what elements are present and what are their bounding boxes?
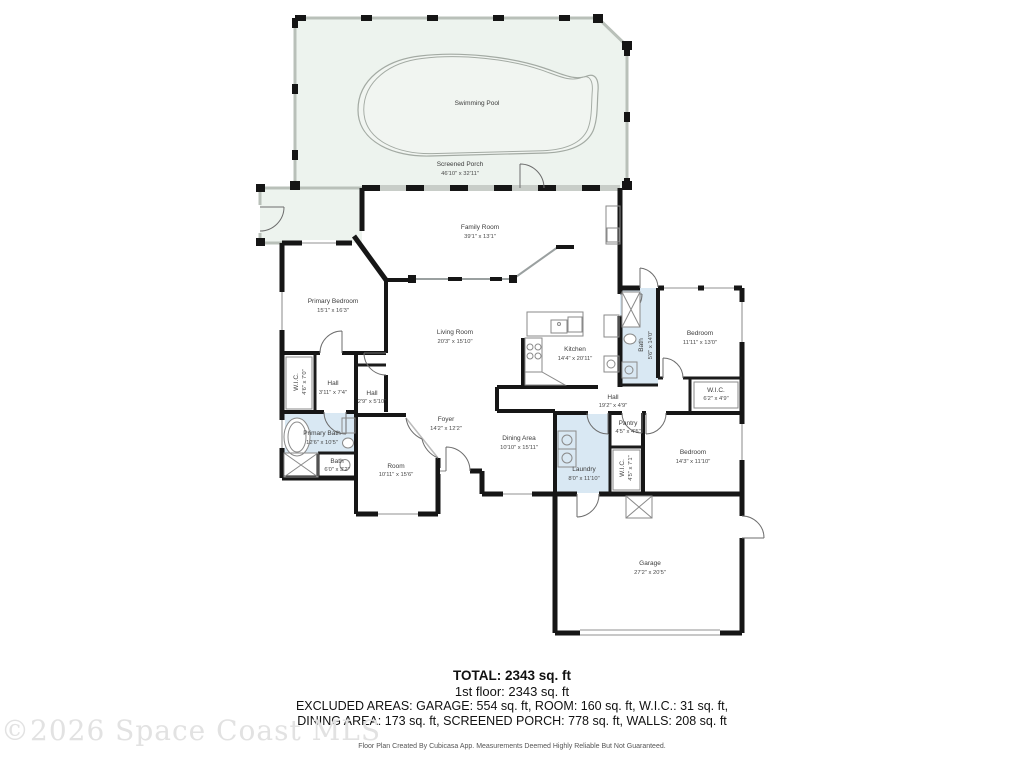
svg-text:27'2" x 20'5": 27'2" x 20'5" <box>634 570 666 576</box>
label-hall-1: Hall <box>327 380 339 387</box>
summary-excluded-1: EXCLUDED AREAS: GARAGE: 554 sq. ft, ROOM… <box>0 699 1024 714</box>
svg-text:19'2" x 4'9": 19'2" x 4'9" <box>599 403 628 409</box>
label-primary-bath: Primary Bath <box>303 430 341 437</box>
svg-text:14'4" x 20'11": 14'4" x 20'11" <box>558 356 593 362</box>
fridge <box>604 315 619 337</box>
label-garage: Garage <box>639 560 661 567</box>
svg-text:4'5" x 7'1": 4'5" x 7'1" <box>628 455 634 480</box>
label-foyer: Foyer <box>438 416 455 423</box>
label-dining-area: Dining Area <box>502 435 536 442</box>
label-primary-bedroom: Primary Bedroom <box>308 298 359 305</box>
svg-text:14'3" x 11'10": 14'3" x 11'10" <box>676 459 711 465</box>
toilet-primary <box>343 438 354 448</box>
label-living-room: Living Room <box>437 329 473 336</box>
svg-text:Bath: Bath <box>638 338 645 352</box>
svg-text:39'1" x 13'1": 39'1" x 13'1" <box>464 234 496 240</box>
label-laundry: Laundry <box>572 466 596 473</box>
label-swimming-pool: Swimming Pool <box>455 100 500 107</box>
garage-door <box>580 627 720 638</box>
label-bedroom-2: Bedroom <box>680 449 706 456</box>
floor-plan: Swimming Pool Screened Porch 46'10" x 32… <box>0 0 1024 768</box>
svg-text:W.I.C.: W.I.C. <box>619 459 626 477</box>
watermark: ©2026 Space Coast MLS <box>1 714 381 747</box>
svg-text:W.I.C.: W.I.C. <box>293 373 300 391</box>
svg-text:46'10" x 32'11": 46'10" x 32'11" <box>441 171 479 177</box>
svg-text:3'11" x 7'4": 3'11" x 7'4" <box>319 390 347 396</box>
svg-text:12'6" x 10'5": 12'6" x 10'5" <box>306 440 338 446</box>
svg-text:6'0" x 3'2": 6'0" x 3'2" <box>324 467 349 473</box>
svg-text:8'0" x 11'10": 8'0" x 11'10" <box>568 476 599 482</box>
svg-text:15'1" x 16'3": 15'1" x 16'3" <box>317 308 349 314</box>
svg-text:10'11" x 15'6": 10'11" x 15'6" <box>379 472 414 478</box>
label-family-room: Family Room <box>461 224 499 231</box>
label-hall-2: Hall <box>366 390 378 397</box>
svg-text:11'11" x 13'0": 11'11" x 13'0" <box>683 340 717 346</box>
label-wic-right: W.I.C. <box>707 387 725 394</box>
label-room: Room <box>387 463 404 470</box>
label-hall-main: Hall <box>607 394 619 401</box>
svg-text:2'9" x 5'10": 2'9" x 5'10" <box>358 399 387 405</box>
svg-text:6'2" x 4'9": 6'2" x 4'9" <box>703 396 728 402</box>
svg-text:4'6" x 7'0": 4'6" x 7'0" <box>302 369 308 394</box>
label-bath-2: Bath <box>330 458 344 465</box>
svg-text:14'2" x 12'2": 14'2" x 12'2" <box>430 426 462 432</box>
label-kitchen: Kitchen <box>564 346 586 353</box>
label-wic-bottom: W.I.C. 4'5" x 7'1" <box>619 455 634 480</box>
svg-text:4'5" x 4'5": 4'5" x 4'5" <box>615 429 640 435</box>
toilet-bath1 <box>624 334 636 344</box>
summary-total: TOTAL: 2343 sq. ft <box>0 668 1024 684</box>
summary-first-floor: 1st floor: 2343 sq. ft <box>0 684 1024 699</box>
floor-plan-page: Swimming Pool Screened Porch 46'10" x 32… <box>0 0 1024 768</box>
label-pantry: Pantry <box>619 420 639 427</box>
label-wic-left: W.I.C. 4'6" x 7'0" <box>293 369 308 394</box>
label-bedroom-1: Bedroom <box>687 330 713 337</box>
svg-text:5'6" x 14'0": 5'6" x 14'0" <box>648 331 654 360</box>
svg-text:10'10" x 15'11": 10'10" x 15'11" <box>500 445 538 451</box>
svg-text:20'3" x 15'10": 20'3" x 15'10" <box>437 339 472 345</box>
label-screened-porch: Screened Porch <box>437 161 484 168</box>
